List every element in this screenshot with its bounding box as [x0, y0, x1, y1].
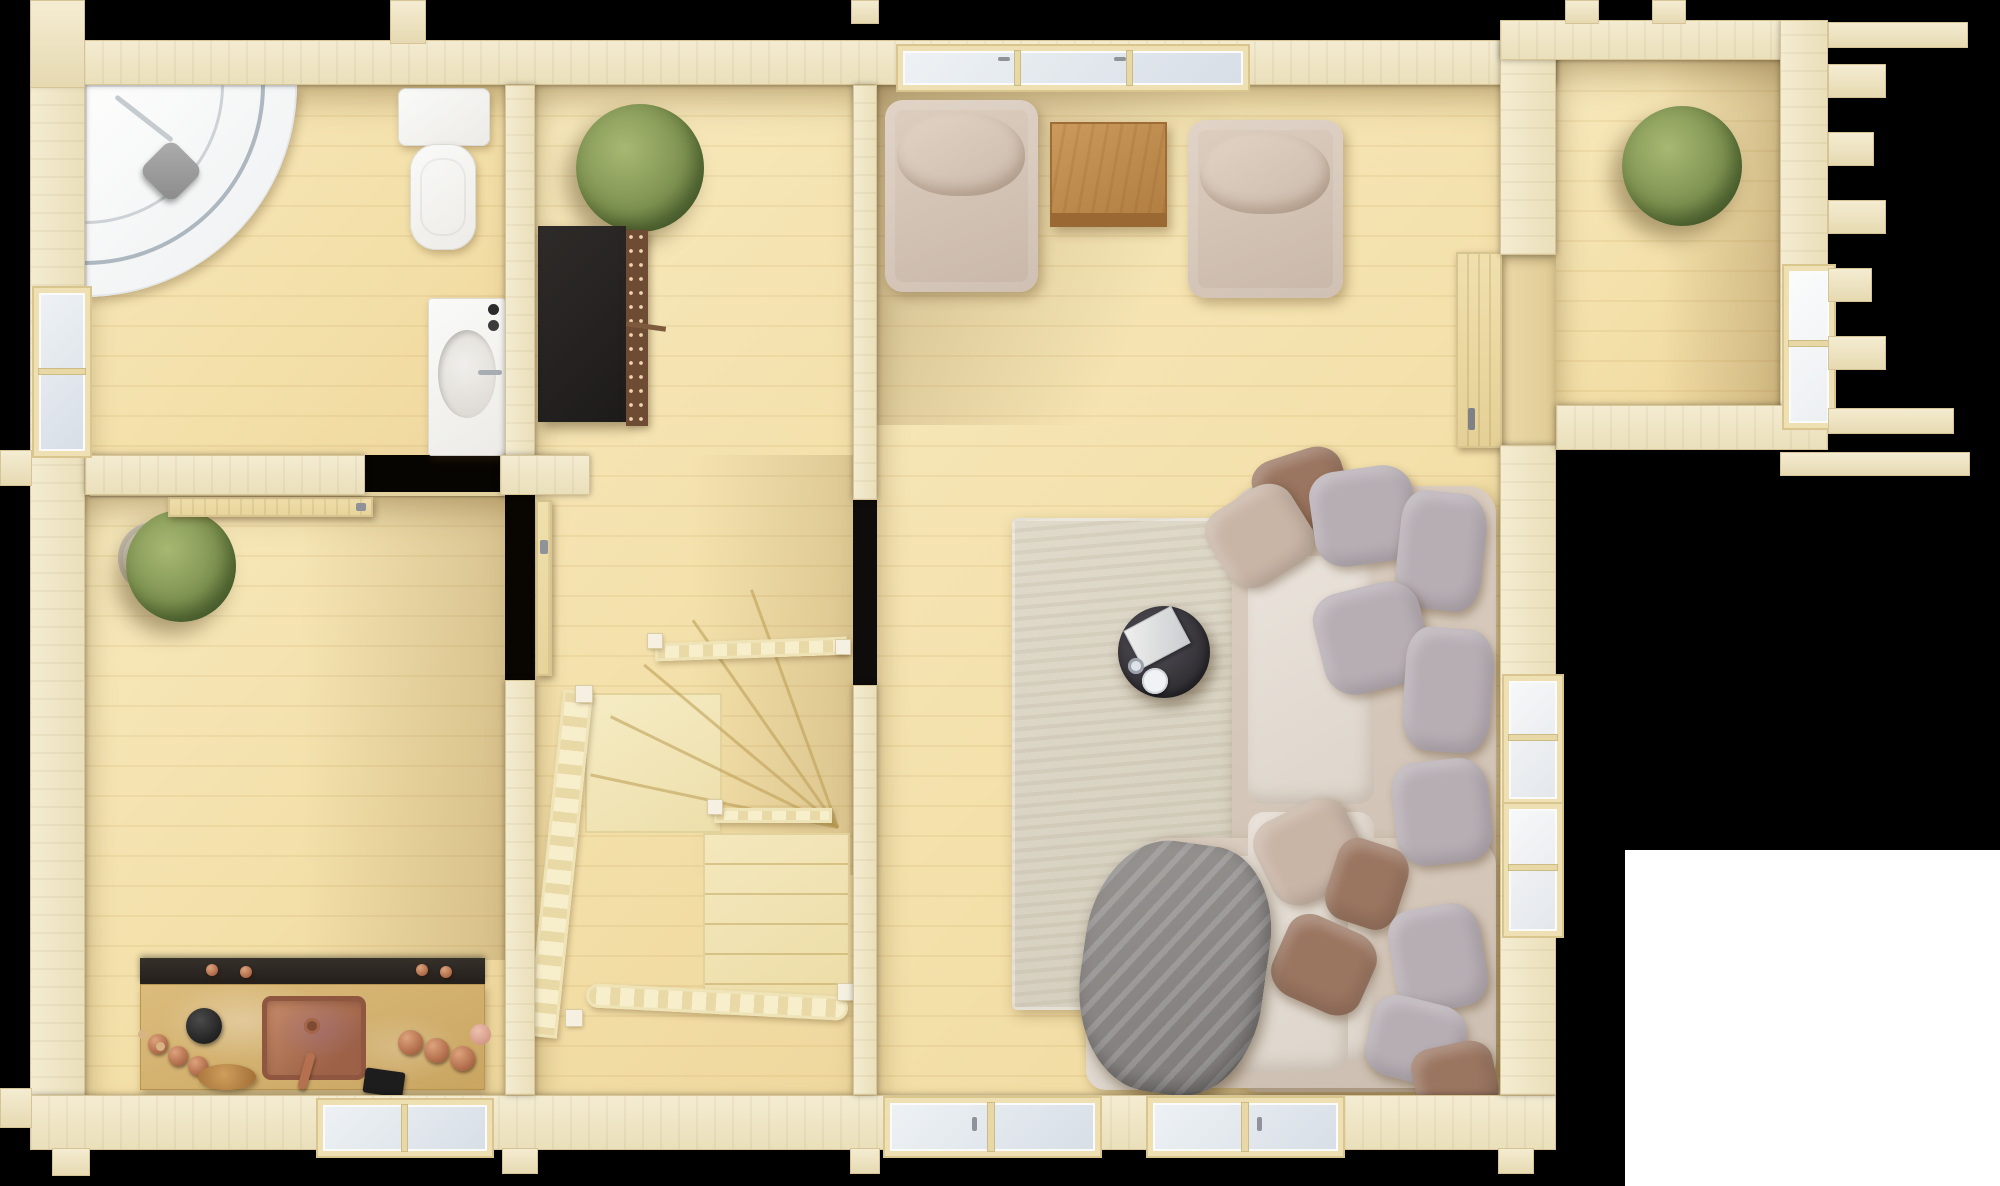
- stair-post-2: [648, 634, 662, 648]
- annex-door-leaf: [1456, 252, 1502, 448]
- log-end-bottom-4: [1498, 1148, 1534, 1174]
- log-end-left-mid: [0, 450, 32, 486]
- stair-post-5: [838, 984, 854, 1000]
- counter-lid-2: [240, 966, 252, 978]
- sink-drain: [304, 1018, 320, 1034]
- stair-post-6: [566, 1010, 582, 1026]
- kitchen-window: [318, 1100, 492, 1156]
- log-end-bottom-3: [850, 1148, 880, 1174]
- canister-2: [424, 1038, 449, 1063]
- stair-winder-treads: [585, 690, 838, 1030]
- annex-plant: [1622, 106, 1742, 226]
- wall-annex-top: [1500, 20, 1810, 60]
- annex-door-handle: [1468, 408, 1475, 430]
- log-end-annex-right-1: [1828, 64, 1886, 98]
- floor-plan-render: [0, 0, 2000, 1186]
- kitchen-counter-back: [140, 958, 485, 984]
- canister-1: [398, 1030, 423, 1055]
- log-end-annex-right-5: [1828, 336, 1886, 370]
- side-table-edge: [1050, 213, 1167, 227]
- kitchen-hall-door-handle: [540, 540, 548, 554]
- cup-large: [1142, 668, 1168, 694]
- wall-bathroom-south-b: [500, 455, 590, 495]
- vanity-jar: [488, 304, 499, 315]
- wine-cork-1: [138, 1030, 147, 1039]
- sliding-door-handle: [356, 503, 366, 511]
- stair-post-3: [836, 640, 850, 654]
- wooden-bowl: [198, 1064, 256, 1090]
- kitchen-wall-plant: [126, 510, 236, 622]
- annex-window: [1784, 266, 1834, 428]
- armchair-left-headrest: [897, 112, 1025, 196]
- doorway-hall-living-shadow: [853, 500, 877, 685]
- doorway-bathroom-kitchen-shadow: [365, 455, 500, 495]
- copper-sink: [262, 996, 366, 1080]
- wall-exterior-right-upper: [1500, 40, 1556, 255]
- entry-plant: [576, 104, 704, 232]
- log-end-annex-top-rail: [1828, 22, 1968, 48]
- wall-hall-living-lower: [853, 685, 877, 1095]
- log-end-top-1: [390, 0, 426, 44]
- log-end-top-left: [30, 0, 85, 88]
- wine-bottle-2: [168, 1046, 188, 1066]
- wall-left-column-lower: [505, 680, 535, 1095]
- white-corner-cutout: [1625, 850, 2000, 1186]
- log-end-annex-bottom-rail-2: [1780, 452, 1970, 476]
- log-end-annex-right-3: [1828, 200, 1886, 234]
- canister-3: [450, 1046, 475, 1071]
- living-right-window-lower: [1504, 804, 1562, 936]
- canister-pink: [470, 1024, 491, 1045]
- log-end-annex-bottom-rail-1: [1828, 408, 1954, 434]
- log-end-left-bottom: [0, 1088, 32, 1128]
- stair-rail-mid: [714, 808, 832, 823]
- wall-left-column-upper: [505, 85, 535, 460]
- log-end-top-2: [851, 0, 879, 24]
- kitchen-hall-door-leaf: [536, 500, 552, 676]
- log-end-annex-right-2: [1828, 132, 1874, 166]
- stair-post-1: [576, 686, 592, 702]
- counter-lid-1: [206, 964, 218, 976]
- toilet-cistern: [398, 88, 490, 146]
- counter-lid-4: [440, 966, 452, 978]
- cup-small: [1128, 658, 1144, 674]
- log-end-bottom-2: [502, 1148, 538, 1174]
- black-shelf: [538, 226, 626, 422]
- bathroom-window: [34, 288, 90, 456]
- log-end-annex-top-1: [1565, 0, 1599, 24]
- stair-post-4: [708, 800, 722, 814]
- living-bottom-window-left: [885, 1098, 1100, 1156]
- counter-lid-3: [416, 964, 428, 976]
- living-top-long-window: [898, 46, 1248, 90]
- living-bottom-window-right: [1148, 1098, 1343, 1156]
- wall-bathroom-south-a: [85, 455, 365, 495]
- log-end-annex-top-2: [1652, 0, 1686, 24]
- side-table: [1050, 122, 1167, 227]
- armchair-right-headrest: [1200, 132, 1330, 214]
- vanity-jar-2: [488, 320, 499, 331]
- wall-exterior-left: [30, 40, 85, 1150]
- toilet-seam: [420, 158, 466, 236]
- tablet: [362, 1067, 405, 1097]
- doorway-kitchen-hall-shadow: [505, 495, 535, 680]
- wine-bottle-black: [186, 1008, 222, 1044]
- log-end-bottom-1: [52, 1148, 90, 1176]
- sink-faucet: [478, 370, 502, 375]
- living-right-window-upper: [1504, 676, 1562, 804]
- pillow-gray-5: [1389, 755, 1495, 868]
- wine-cork-2: [156, 1042, 165, 1051]
- sliding-door-panel: [168, 497, 373, 517]
- annex-doorway-floor: [1500, 255, 1556, 445]
- pillow-gray-4: [1400, 625, 1496, 755]
- wall-exterior-top: [30, 40, 1556, 85]
- wall-hall-living-upper: [853, 85, 877, 500]
- log-end-annex-right-4: [1828, 268, 1872, 302]
